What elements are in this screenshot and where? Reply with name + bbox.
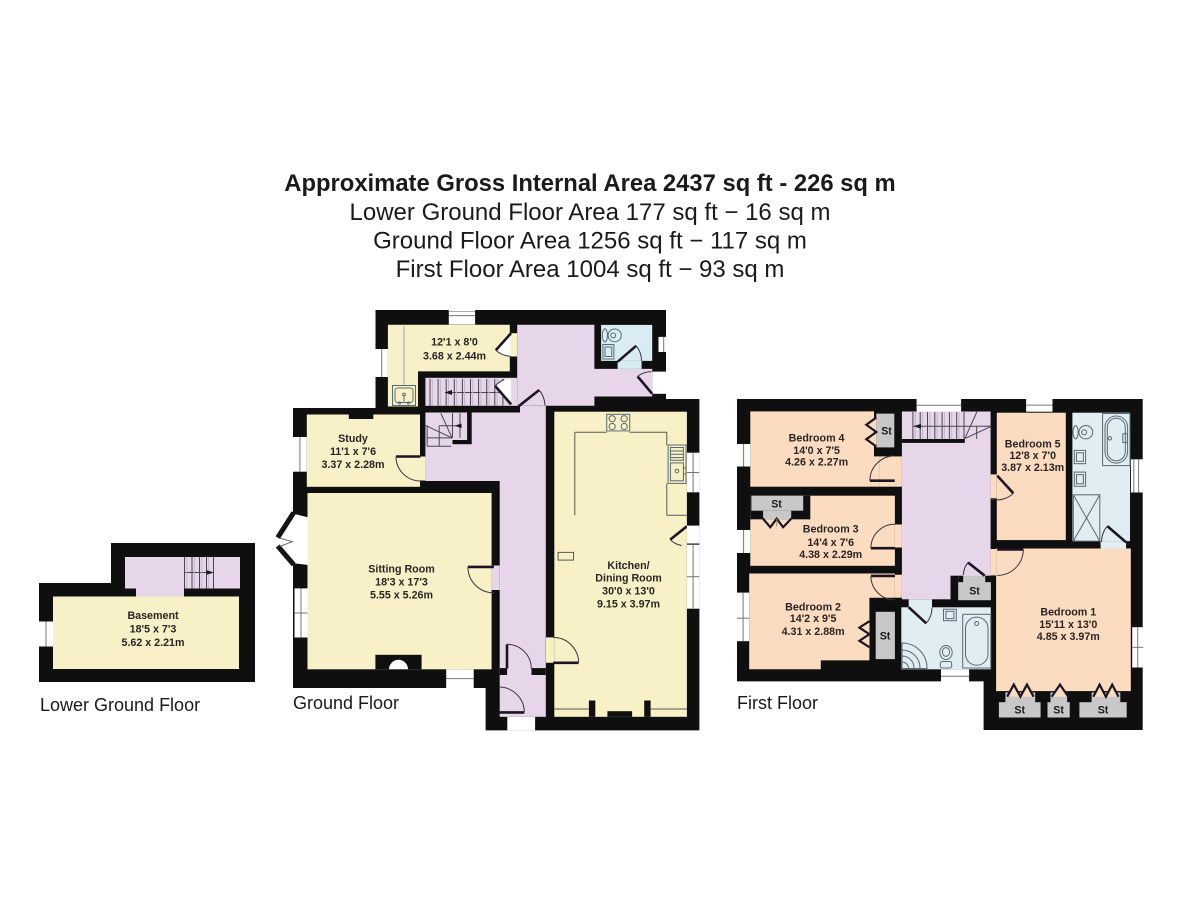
svg-text:5.55 x 5.26m: 5.55 x 5.26m [370,590,433,602]
svg-text:Approximate Gross Internal Are: Approximate Gross Internal Area 2437 sq … [284,170,895,197]
svg-text:11'1 x 7'6: 11'1 x 7'6 [330,446,376,458]
svg-text:18'3 x 17'3: 18'3 x 17'3 [375,577,428,589]
svg-text:14'0 x 7'5: 14'0 x 7'5 [793,445,840,457]
svg-text:9.15 x 3.97m: 9.15 x 3.97m [597,599,660,611]
svg-text:St: St [1014,705,1025,717]
svg-text:Ground Floor: Ground Floor [293,693,399,713]
svg-text:15'11 x 13'0: 15'11 x 13'0 [1039,619,1097,631]
svg-text:18'5 x 7'3: 18'5 x 7'3 [130,624,177,636]
svg-text:Kitchen/: Kitchen/ [607,560,649,572]
svg-text:St: St [880,631,891,643]
svg-text:Study: Study [338,433,368,445]
svg-text:14'4 x 7'6: 14'4 x 7'6 [807,537,854,549]
svg-text:12'8 x 7'0: 12'8 x 7'0 [1009,450,1056,462]
svg-text:St: St [881,426,892,438]
svg-text:Bedroom 4: Bedroom 4 [789,433,845,445]
svg-text:3.37 x 2.28m: 3.37 x 2.28m [322,459,385,471]
svg-text:3.87 x 2.13m: 3.87 x 2.13m [1001,462,1064,474]
svg-text:Basement: Basement [127,610,179,622]
svg-text:First Floor: First Floor [737,693,818,713]
svg-text:5.62 x 2.21m: 5.62 x 2.21m [122,637,185,649]
svg-text:Dining Room: Dining Room [595,573,662,585]
svg-text:Bedroom 5: Bedroom 5 [1005,439,1061,451]
svg-text:30'0 x 13'0: 30'0 x 13'0 [602,586,655,598]
svg-text:Bedroom 3: Bedroom 3 [803,524,859,536]
svg-text:14'2 x 9'5: 14'2 x 9'5 [790,613,837,625]
svg-text:12'1 x 8'0: 12'1 x 8'0 [431,337,478,349]
svg-text:St: St [771,499,782,511]
svg-text:4.38 x 2.29m: 4.38 x 2.29m [799,549,862,561]
svg-text:4.31 x 2.88m: 4.31 x 2.88m [782,626,845,638]
svg-text:Sitting Room: Sitting Room [368,564,435,576]
svg-text:4.26 x 2.27m: 4.26 x 2.27m [785,457,848,469]
svg-text:Bedroom 2: Bedroom 2 [785,602,841,614]
svg-text:Lower Ground Floor: Lower Ground Floor [40,695,200,715]
svg-text:Lower Ground Floor Area 177 sq: Lower Ground Floor Area 177 sq ft − 16 s… [350,199,831,226]
svg-text:4.85 x 3.97m: 4.85 x 3.97m [1037,631,1100,643]
svg-text:First Floor Area 1004 sq ft −: First Floor Area 1004 sq ft − 93 sq m [396,256,785,283]
svg-text:St: St [1053,705,1064,717]
svg-text:Ground Floor Area 1256 sq ft −: Ground Floor Area 1256 sq ft − 117 sq m [373,228,807,255]
svg-text:St: St [1098,705,1109,717]
svg-text:St: St [969,586,980,598]
svg-text:Bedroom 1: Bedroom 1 [1040,607,1096,619]
svg-text:3.68 x 2.44m: 3.68 x 2.44m [423,351,486,363]
